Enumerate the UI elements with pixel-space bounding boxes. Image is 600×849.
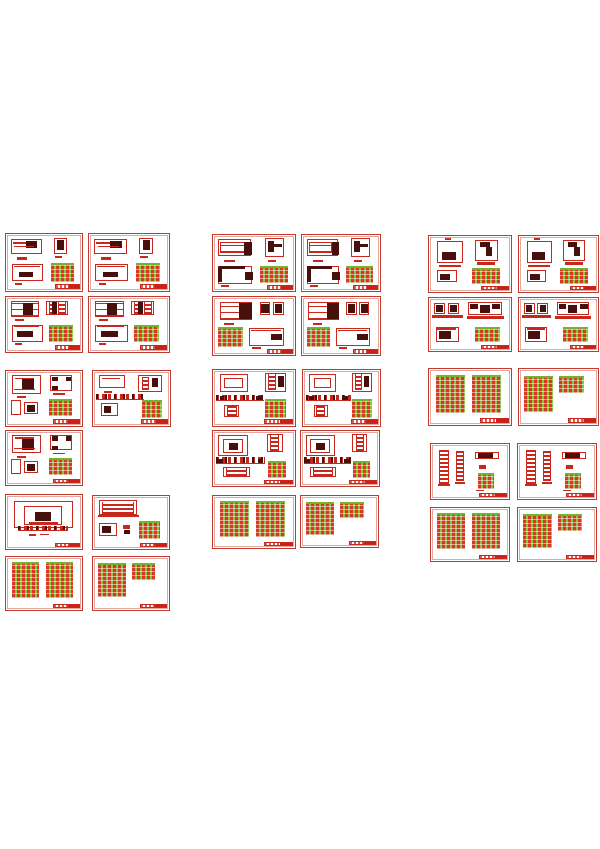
column-hatch	[543, 451, 551, 482]
ink-detail	[35, 512, 51, 521]
drawing-sheet	[92, 556, 170, 611]
red-line	[313, 323, 322, 325]
schedule-table	[134, 325, 160, 343]
red-line	[252, 347, 260, 349]
red-line	[338, 330, 367, 331]
title-block	[353, 349, 377, 354]
drawing-sheet	[428, 368, 512, 426]
ink-detail	[107, 303, 117, 315]
schedule-table	[472, 375, 502, 413]
plan-hatch	[309, 242, 332, 253]
schedule-table	[49, 458, 72, 475]
schedule-table	[306, 502, 334, 535]
red-line	[98, 246, 119, 247]
schedule-table	[220, 501, 250, 536]
schedule-table	[436, 375, 466, 413]
drawing-sheet	[300, 495, 379, 548]
schedule-table	[307, 327, 330, 347]
schedule-table	[49, 399, 72, 417]
drawing-sheet	[5, 370, 83, 427]
title-block	[267, 349, 292, 354]
ink-detail	[478, 453, 493, 457]
red-line	[53, 453, 65, 455]
ink-detail	[327, 303, 339, 319]
schedule-table	[218, 327, 243, 347]
drawing-sheet	[518, 297, 599, 352]
schedule-table-small	[478, 473, 494, 489]
ink-detail	[274, 244, 282, 247]
column-hatch	[226, 468, 247, 476]
ink-detail	[229, 443, 239, 450]
red-line	[15, 437, 34, 438]
drawing-sheet	[5, 233, 83, 292]
ink-detail	[102, 526, 111, 533]
column-hatch	[144, 302, 152, 314]
red-line	[563, 490, 571, 492]
ink-detail	[52, 302, 57, 314]
title-block	[479, 555, 506, 560]
schedule-table	[12, 562, 39, 598]
red-line	[99, 343, 106, 345]
ink-detail	[361, 304, 368, 313]
plan-hatch	[220, 242, 245, 253]
red-line	[140, 256, 148, 258]
column-hatch	[268, 374, 276, 389]
red-line	[542, 482, 551, 484]
drawing-sheet	[5, 556, 83, 611]
detail-frame	[314, 378, 332, 389]
red-line	[15, 319, 24, 321]
column-hatch	[313, 468, 333, 476]
ink-detail	[480, 305, 490, 313]
red-line	[439, 265, 461, 268]
drawing-sheet	[88, 233, 170, 292]
detail-frame	[11, 459, 22, 474]
ink-detail	[278, 376, 284, 387]
ink-detail	[344, 459, 349, 463]
red-line	[221, 285, 229, 287]
ink-detail	[275, 304, 282, 313]
schedule-table-small	[475, 327, 500, 342]
title-block	[349, 541, 376, 546]
title-block	[140, 284, 166, 289]
ink-detail	[261, 304, 268, 313]
red-line	[101, 257, 111, 260]
red-line	[98, 515, 139, 517]
ink-detail	[343, 396, 348, 400]
ink-detail	[364, 376, 369, 387]
column-hatch	[58, 302, 66, 314]
title-block	[481, 345, 508, 349]
column-hatch	[227, 406, 237, 416]
ink-detail	[218, 459, 223, 463]
schedule-table	[346, 266, 373, 283]
title-block	[141, 419, 168, 424]
drawing-sheet	[92, 370, 171, 427]
schedule-table	[51, 263, 74, 282]
drawing-sheet	[88, 296, 170, 353]
red-line	[97, 266, 125, 267]
drawing-sheet	[212, 495, 296, 549]
ink-detail	[439, 331, 451, 339]
ink-detail	[486, 247, 493, 256]
red-line	[14, 326, 40, 327]
detail-frame	[11, 400, 22, 415]
red-line	[432, 315, 462, 318]
ink-detail	[530, 274, 539, 280]
ink-detail	[52, 386, 58, 390]
title-block	[53, 419, 80, 424]
drawing-sheet	[212, 430, 296, 487]
ink-detail	[528, 331, 540, 339]
ink-detail	[470, 304, 478, 309]
ink-detail	[526, 305, 532, 312]
ink-detail	[52, 377, 58, 382]
drawing-sheet	[5, 296, 83, 353]
title-block	[480, 418, 509, 423]
ink-detail	[26, 241, 37, 248]
ink-detail	[540, 305, 546, 312]
ink-detail	[574, 247, 580, 256]
annotation-mark	[40, 534, 49, 536]
title-block	[55, 284, 80, 289]
drawing-sheet	[212, 369, 296, 427]
schedule-table	[139, 521, 160, 539]
red-line	[555, 316, 591, 319]
drawing-sheet	[517, 507, 597, 562]
red-line	[522, 315, 551, 318]
schedule-table	[437, 513, 465, 549]
red-line	[14, 448, 35, 449]
ink-detail	[565, 453, 580, 457]
schedule-table	[352, 399, 372, 417]
title-block	[55, 345, 80, 350]
schedule-table	[49, 325, 73, 343]
detail-frame	[224, 378, 243, 389]
schedule-table	[353, 461, 370, 479]
title-block	[351, 419, 378, 424]
title-block	[479, 493, 506, 497]
ink-detail	[559, 304, 567, 309]
red-line	[14, 266, 41, 267]
ink-detail	[450, 305, 457, 312]
ink-detail	[66, 436, 71, 441]
title-block	[53, 479, 80, 484]
drawing-sheet	[301, 234, 381, 292]
schedule-table	[268, 461, 286, 479]
drawing-sheet	[5, 494, 83, 550]
schedule-table	[98, 563, 126, 597]
title-block	[140, 543, 167, 548]
red-line	[310, 285, 318, 287]
red-line	[17, 456, 26, 458]
drawing-sheet	[300, 430, 380, 487]
title-block	[568, 418, 596, 423]
ink-detail	[256, 396, 261, 400]
title-block	[264, 542, 293, 547]
column-hatch	[355, 374, 363, 389]
ink-detail	[52, 436, 58, 441]
annotation-mark	[566, 465, 574, 469]
title-block	[140, 345, 166, 350]
ink-detail	[307, 266, 332, 269]
title-block	[53, 604, 80, 609]
ink-detail	[332, 272, 340, 280]
drawing-sheet	[301, 296, 381, 356]
ink-detail	[103, 272, 118, 278]
drawing-sheet	[518, 235, 599, 293]
drawing-sheet	[302, 369, 381, 427]
drawing-sheet	[430, 507, 510, 562]
ink-detail	[66, 377, 71, 382]
column-hatch	[456, 451, 464, 482]
title-block	[140, 604, 167, 609]
ink-detail	[357, 334, 367, 340]
column-hatch	[142, 377, 150, 391]
title-block	[55, 543, 80, 548]
schedule-table	[132, 563, 156, 579]
schedule-table	[142, 400, 162, 418]
drawing-sheet	[212, 234, 296, 292]
ink-detail	[218, 267, 222, 282]
red-line	[97, 326, 124, 327]
ink-detail	[316, 443, 325, 450]
ink-detail	[492, 304, 500, 309]
drawing-sheet	[517, 443, 597, 500]
column-hatch	[439, 450, 449, 484]
ink-detail	[244, 242, 252, 255]
title-block	[353, 285, 377, 289]
schedule-table	[260, 266, 288, 283]
red-line	[268, 260, 276, 262]
red-line	[14, 389, 35, 390]
red-line	[99, 283, 106, 285]
red-line	[251, 330, 281, 331]
ink-detail	[110, 241, 122, 248]
ink-detail	[440, 274, 450, 280]
red-line	[14, 246, 34, 247]
schedule-table	[46, 562, 73, 598]
title-block	[566, 493, 593, 497]
red-line	[438, 484, 450, 486]
drawing-sheet	[212, 296, 296, 356]
assembly-band	[18, 526, 68, 530]
ink-detail	[307, 267, 311, 282]
red-line	[29, 534, 37, 536]
ink-detail	[143, 240, 150, 250]
ink-detail	[27, 464, 35, 471]
title-block	[570, 286, 596, 290]
red-line	[53, 393, 65, 395]
drawing-sheet	[430, 443, 510, 500]
red-line	[528, 265, 549, 268]
annotation-mark	[479, 465, 487, 469]
schedule-table	[256, 501, 286, 536]
red-line	[477, 262, 496, 265]
drawing-sheet	[428, 297, 512, 352]
schedule-table	[559, 376, 583, 393]
ink-detail	[245, 272, 253, 280]
ink-detail	[360, 244, 368, 247]
ink-detail	[19, 272, 33, 278]
title-block	[264, 480, 293, 484]
ink-detail	[138, 302, 143, 314]
schedule-table	[523, 514, 552, 548]
ink-detail	[219, 266, 245, 269]
schedule-table	[560, 268, 588, 284]
drawing-sheet	[92, 495, 170, 550]
ink-detail	[332, 242, 340, 255]
ink-detail	[442, 252, 456, 260]
schedule-table	[340, 502, 364, 518]
ink-detail	[52, 446, 58, 450]
annotation-mark	[123, 525, 131, 529]
red-line	[55, 256, 63, 258]
ink-detail	[17, 331, 33, 337]
schedule-table	[265, 399, 286, 417]
ink-detail	[152, 378, 158, 387]
schedule-table-small	[563, 327, 587, 342]
ink-detail	[124, 530, 130, 534]
ink-detail	[23, 303, 33, 315]
column-hatch	[526, 450, 536, 484]
column-hatch	[102, 502, 134, 514]
ink-detail	[306, 459, 311, 463]
ink-detail	[57, 240, 64, 250]
schedule-table	[136, 263, 160, 282]
title-block	[349, 480, 376, 484]
ink-detail	[348, 304, 355, 313]
red-line	[17, 396, 26, 398]
red-line	[455, 482, 464, 484]
red-line	[99, 319, 109, 321]
schedule-table	[472, 513, 500, 549]
red-line	[565, 262, 583, 265]
title-block	[481, 286, 508, 290]
red-line	[15, 283, 22, 285]
red-line	[102, 378, 120, 379]
column-hatch	[270, 435, 279, 450]
column-hatch	[356, 435, 365, 450]
schedule-table	[472, 268, 501, 284]
ink-detail	[309, 396, 314, 400]
red-line	[354, 260, 362, 262]
red-line	[467, 316, 504, 319]
red-line	[15, 343, 22, 345]
ink-detail	[436, 305, 443, 312]
ink-detail	[532, 252, 545, 260]
red-line	[224, 323, 234, 325]
ink-detail	[104, 406, 112, 413]
ink-detail	[220, 396, 225, 400]
title-block	[264, 419, 293, 424]
red-line	[339, 347, 347, 349]
ink-detail	[580, 304, 588, 309]
title-block	[570, 345, 596, 349]
ink-detail	[239, 303, 251, 319]
column-hatch	[316, 406, 325, 416]
drawing-sheet	[428, 235, 512, 293]
red-line	[224, 260, 235, 262]
ink-detail	[258, 459, 263, 463]
red-line	[437, 328, 456, 330]
title-block	[566, 555, 593, 560]
red-line	[104, 391, 112, 393]
red-line	[476, 490, 484, 492]
red-line	[527, 328, 545, 330]
ink-detail	[27, 405, 35, 412]
red-line	[313, 260, 323, 262]
assembly-band	[96, 394, 144, 400]
ink-detail	[101, 331, 118, 337]
schedule-table-small	[565, 473, 581, 489]
schedule-table	[524, 376, 553, 412]
ink-detail	[568, 305, 577, 313]
red-line	[17, 257, 27, 260]
drawing-sheet	[5, 430, 83, 486]
title-block	[267, 285, 292, 289]
ink-detail	[271, 334, 282, 340]
drawing-sheet	[518, 368, 599, 426]
red-line	[29, 522, 58, 525]
cad-sheet-collage	[0, 0, 600, 849]
red-line	[15, 378, 34, 379]
schedule-table	[558, 514, 582, 530]
red-line	[525, 484, 537, 486]
